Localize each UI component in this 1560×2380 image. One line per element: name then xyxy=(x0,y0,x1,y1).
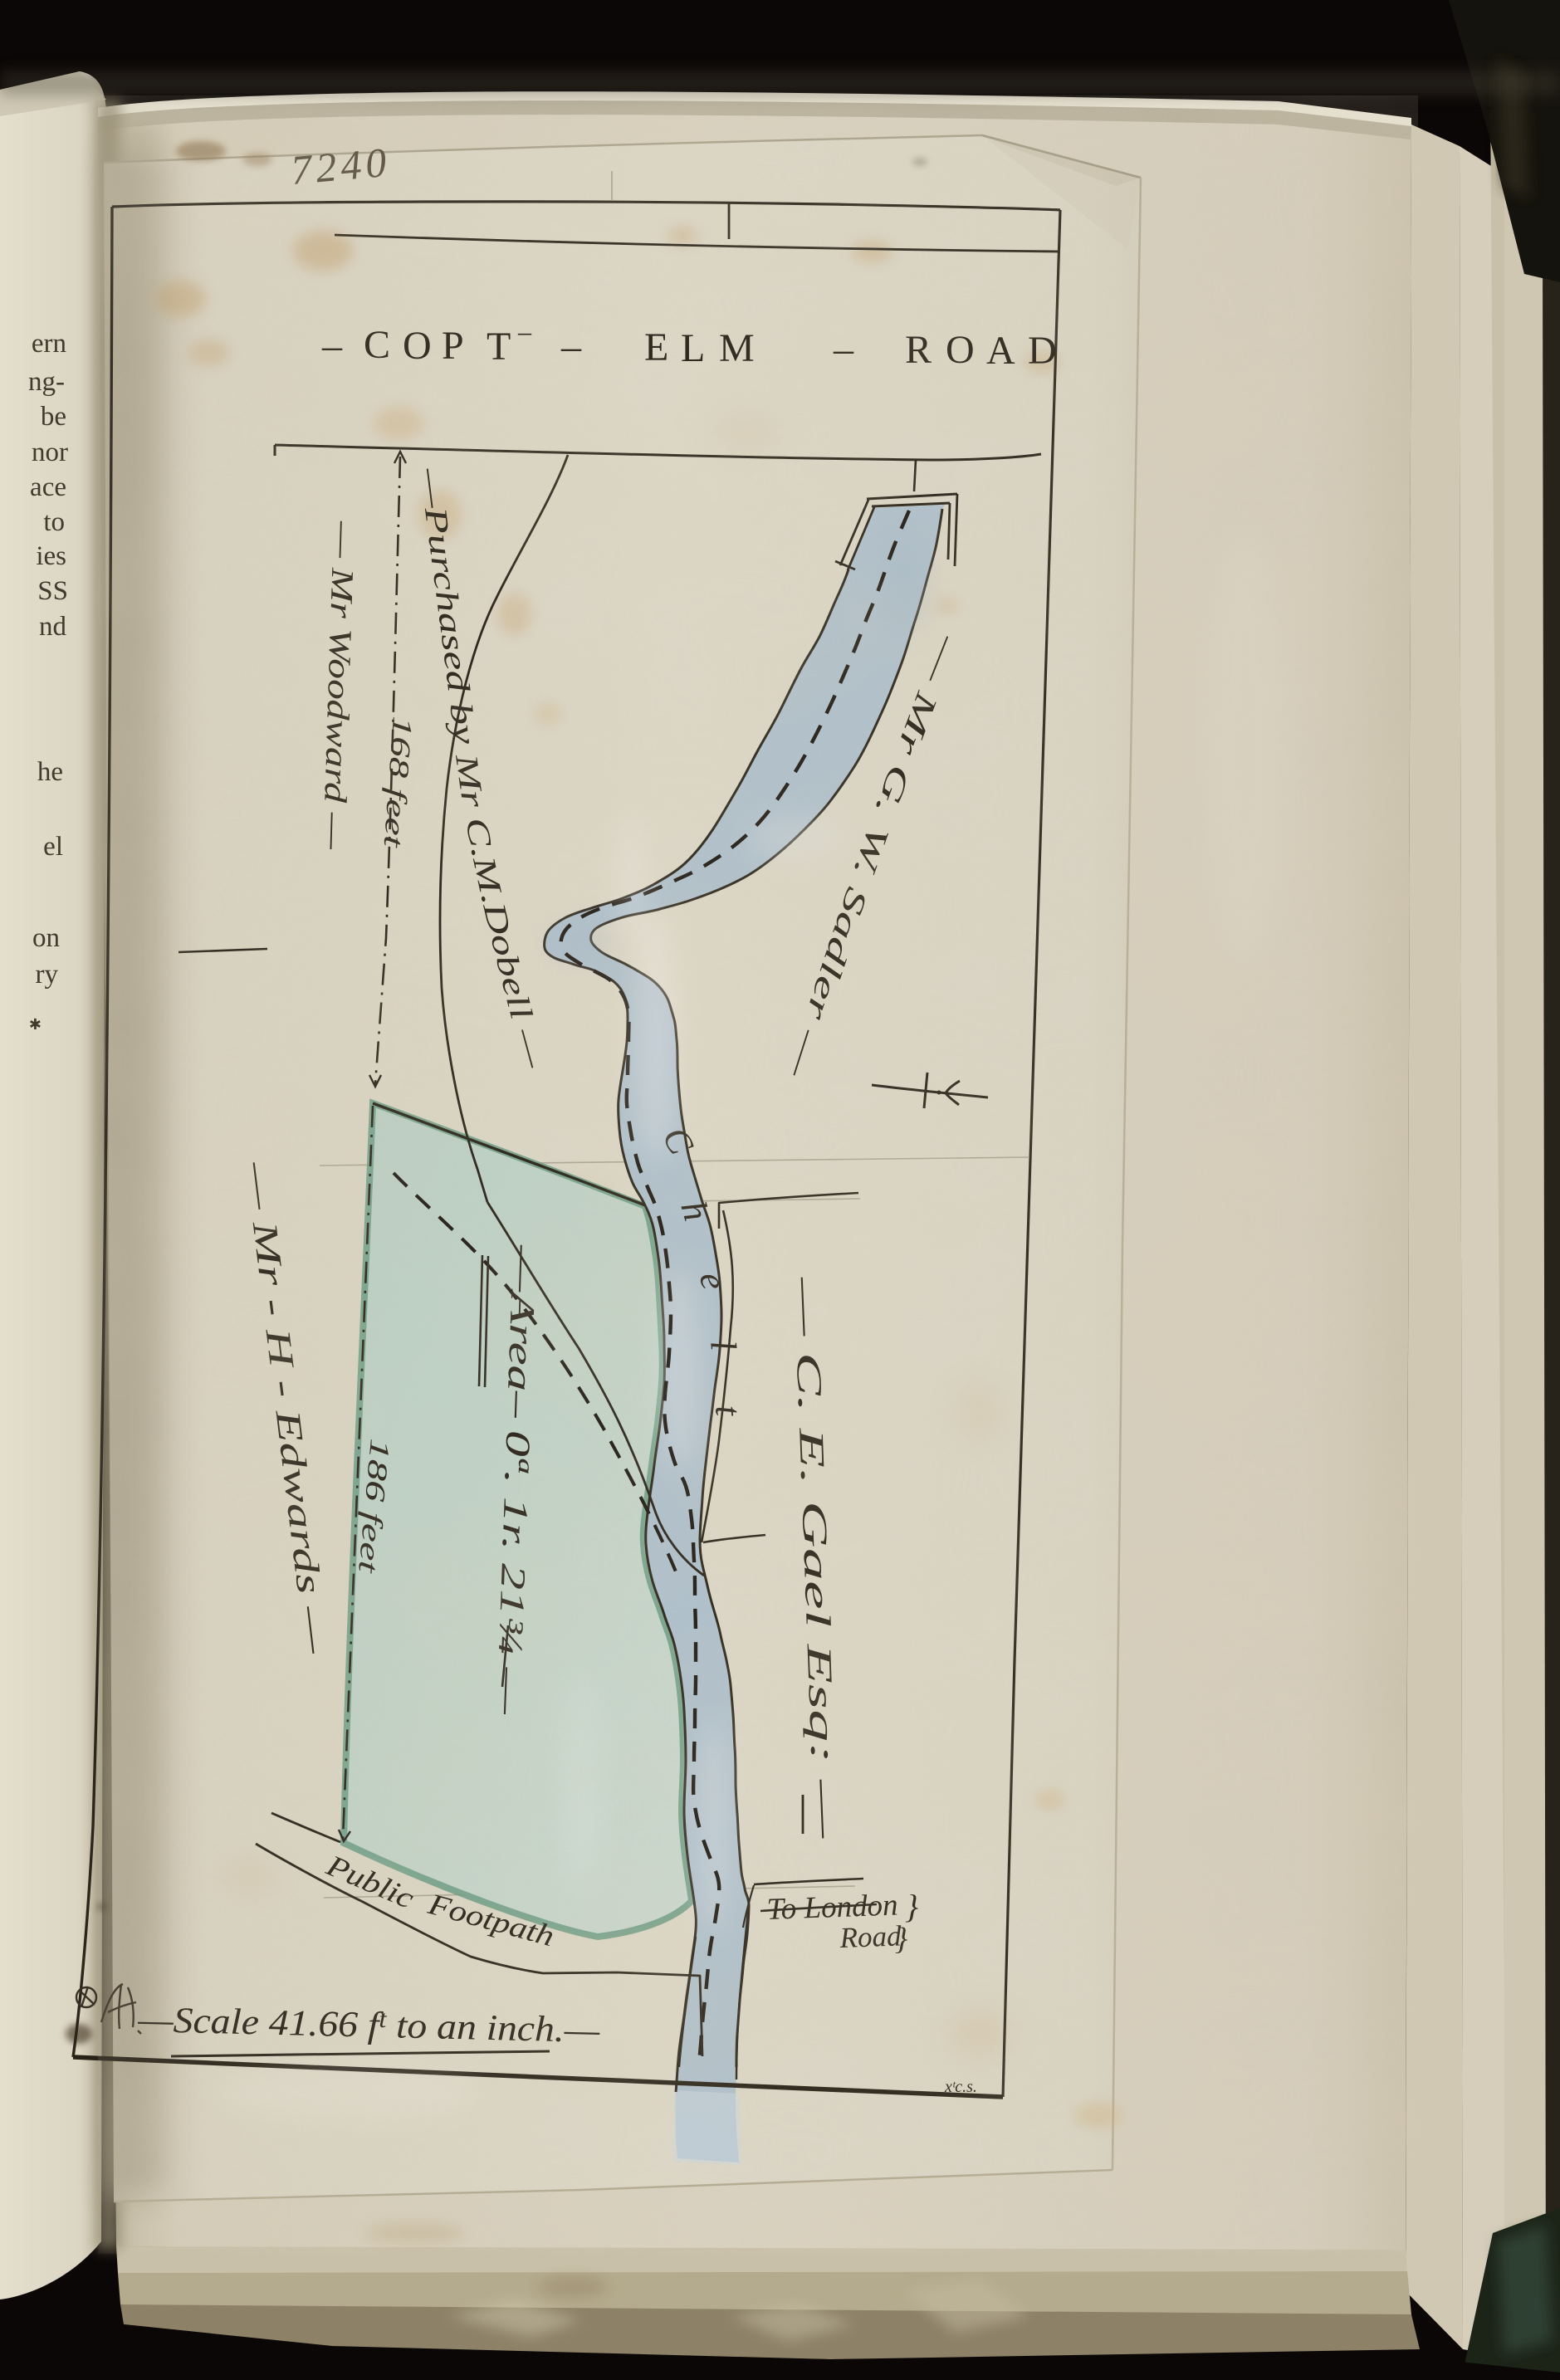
svg-text:he: he xyxy=(37,757,63,787)
svg-text:on: on xyxy=(32,923,60,953)
svg-text:be: be xyxy=(41,402,66,432)
svg-text:ern: ern xyxy=(32,329,66,359)
svg-text:ies: ies xyxy=(36,541,66,571)
svg-text:nor: nor xyxy=(32,437,68,467)
svg-text:ry: ry xyxy=(36,960,59,990)
svg-text:SS: SS xyxy=(37,576,68,606)
svg-text:nd: nd xyxy=(39,612,67,642)
svg-text:ng-: ng- xyxy=(28,367,65,397)
svg-text:el: el xyxy=(43,832,63,862)
svg-text:✱: ✱ xyxy=(29,1016,42,1033)
svg-text:to: to xyxy=(43,507,65,537)
svg-text:ace: ace xyxy=(30,472,66,502)
